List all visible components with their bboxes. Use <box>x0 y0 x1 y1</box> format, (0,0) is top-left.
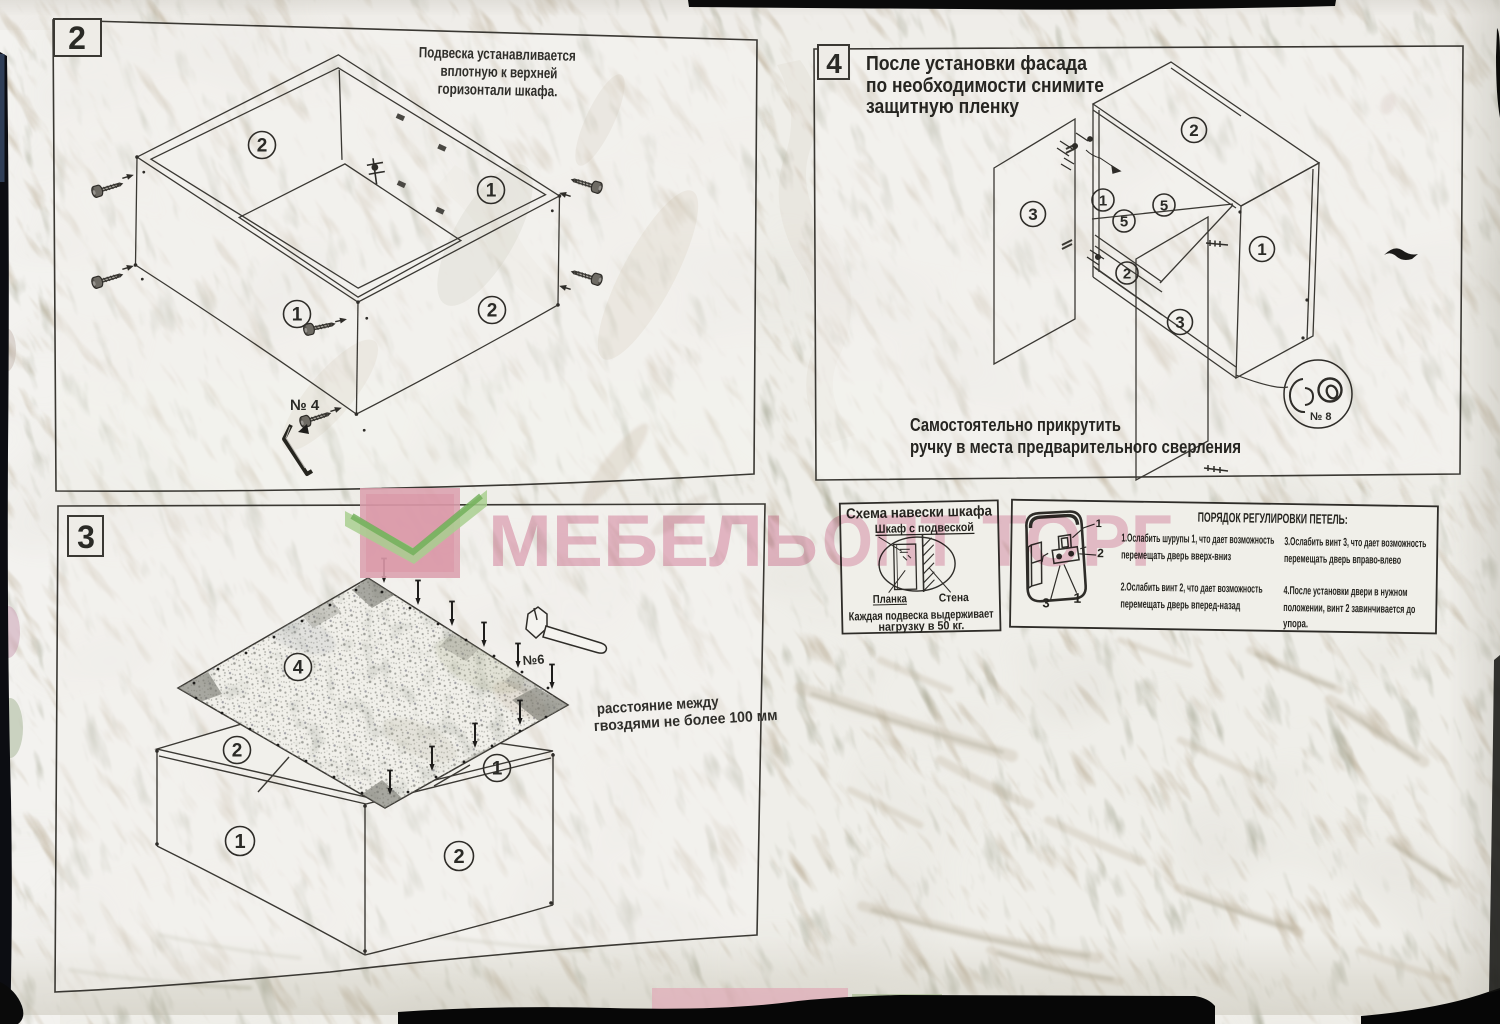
svg-text:После установки фасада: После установки фасада <box>866 53 1088 75</box>
svg-text:1: 1 <box>1257 240 1266 259</box>
svg-text:5: 5 <box>1120 214 1128 231</box>
svg-text:3: 3 <box>77 519 95 555</box>
svg-text:горизонтали шкафа.: горизонтали шкафа. <box>437 81 557 101</box>
svg-text:2: 2 <box>1189 121 1198 140</box>
svg-text:№6: №6 <box>522 652 545 668</box>
svg-text:ТОРГ: ТОРГ <box>982 501 1172 582</box>
svg-text:по необходимости снимите: по необходимости снимите <box>866 75 1104 97</box>
svg-text:защитную пленку: защитную пленку <box>866 96 1020 118</box>
svg-text:2: 2 <box>453 846 464 868</box>
svg-text:4: 4 <box>293 658 304 679</box>
svg-text:МЕБЕЛЬ: МЕБЕЛЬ <box>488 501 818 582</box>
svg-text:1: 1 <box>486 181 497 202</box>
svg-text:2: 2 <box>1123 266 1131 283</box>
svg-text:ОПТ: ОПТ <box>822 501 960 582</box>
svg-text:1: 1 <box>492 759 503 780</box>
svg-text:2: 2 <box>232 741 243 762</box>
svg-text:4.После установки двери в нужн: 4.После установки двери в нужном <box>1284 585 1408 599</box>
svg-text:2: 2 <box>487 301 498 322</box>
svg-text:1: 1 <box>1073 590 1081 606</box>
svg-text:Подвеска устанавливается: Подвеска устанавливается <box>419 44 576 65</box>
svg-text:3: 3 <box>1042 595 1049 610</box>
svg-text:вплотную к верхней: вплотную к верхней <box>440 63 557 83</box>
svg-text:3: 3 <box>1028 205 1037 224</box>
svg-text:Стена: Стена <box>939 592 970 605</box>
svg-text:3.Ослабить винт 3, что дает во: 3.Ослабить винт 3, что дает возможность <box>1284 536 1426 550</box>
svg-text:перемещать дверь вправо-влево: перемещать дверь вправо-влево <box>1284 553 1401 567</box>
svg-text:5: 5 <box>1160 198 1168 215</box>
svg-text:№ 8: № 8 <box>1310 411 1331 423</box>
svg-text:ПОРЯДОК РЕГУЛИРОВКИ ПЕТЕЛЬ:: ПОРЯДОК РЕГУЛИРОВКИ ПЕТЕЛЬ: <box>1198 510 1348 527</box>
svg-text:№ 4: № 4 <box>290 397 320 414</box>
svg-text:ручку в места предварительного: ручку в места предварительного сверления <box>910 437 1241 457</box>
svg-text:1: 1 <box>1099 193 1107 210</box>
svg-text:Самостоятельно прикрутить: Самостоятельно прикрутить <box>910 415 1121 435</box>
svg-text:2.Ослабить винт 2, что дает во: 2.Ослабить винт 2, что дает возможность <box>1121 581 1263 595</box>
svg-text:2: 2 <box>68 20 86 56</box>
svg-text:4: 4 <box>826 48 842 79</box>
svg-text:3: 3 <box>1175 313 1184 332</box>
svg-text:1: 1 <box>292 305 303 326</box>
svg-text:упора.: упора. <box>1283 618 1308 630</box>
svg-text:1: 1 <box>234 831 245 853</box>
svg-text:2: 2 <box>257 136 268 157</box>
svg-text:нагрузку в 50 кг.: нагрузку в 50 кг. <box>878 618 964 634</box>
svg-text:положении, винт 2 завинчивает: положении, винт 2 завинчивается до <box>1283 602 1415 616</box>
svg-text:перемещать дверь вперед-назад: перемещать дверь вперед-назад <box>1120 598 1241 612</box>
